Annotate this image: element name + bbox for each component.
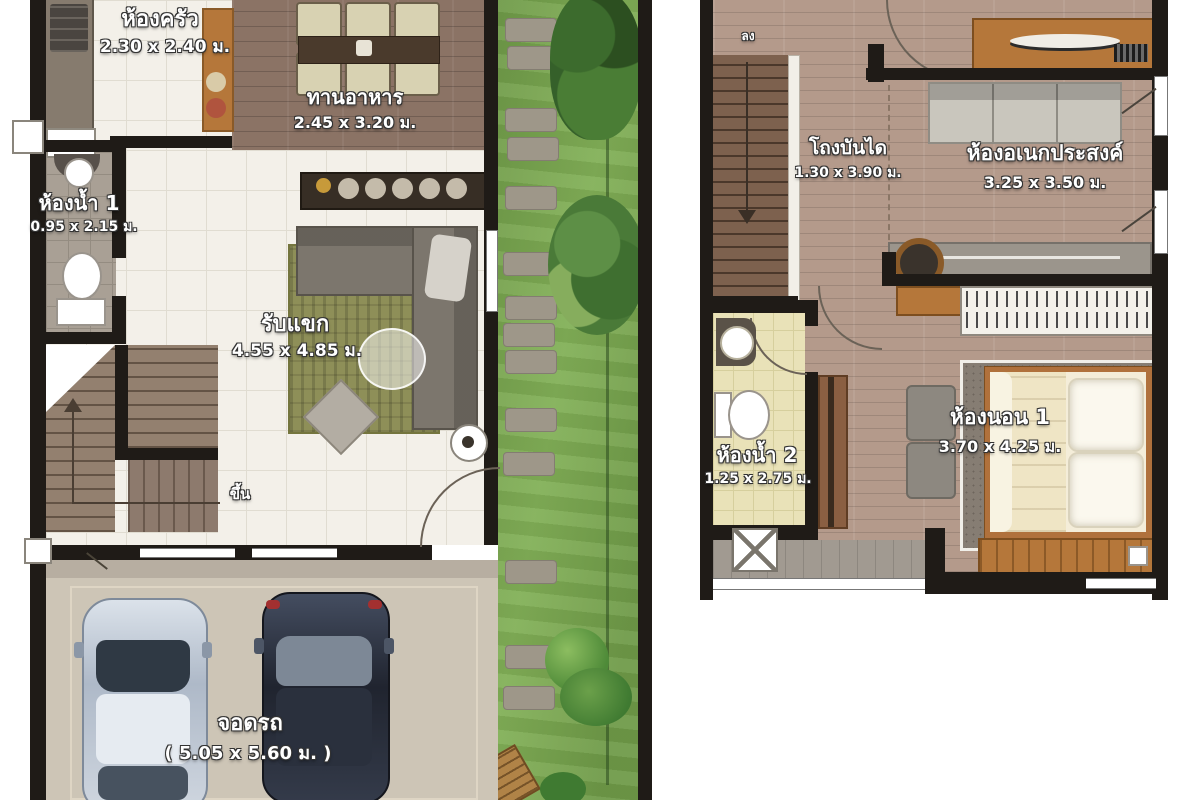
bath2-label: ห้องน้ำ 2 [702,444,812,466]
shrub-cluster-top [550,0,642,140]
desk-2f-highlight [920,256,1120,259]
stepping-stone [505,408,557,432]
bed-pillow [1068,452,1144,528]
stepping-stone [503,452,555,476]
console-decor-gold [316,178,331,193]
console-bowl [365,178,386,199]
dining-label: ทานอาหาร [280,86,430,108]
balcony-balustrade [713,578,925,590]
kitchen-dims: 2.30 x 2.40 ม. [70,38,260,57]
stairs-up-leader-line [72,502,220,504]
bedroom-bottom-window [1086,578,1156,589]
small-cabinet-2f [896,286,964,316]
stepping-stone [505,296,557,320]
stepping-stone [505,186,557,210]
car-light-mirror [202,642,212,658]
stepping-stone [503,686,555,710]
car-light-rear-window [98,766,188,800]
parking-dims: ( 5.05 x 5.60 ม. ) [158,744,338,764]
tv-2f [1010,34,1120,48]
dining-dims: 2.45 x 3.20 ม. [275,114,435,132]
living-window [486,230,498,312]
ac-unit [732,528,778,572]
door-mat-center [462,436,474,448]
bath2-wall-top [702,300,818,313]
stairhall-dims: 1.30 x 3.90 ม. [793,166,903,181]
multipurpose-top-wall [866,68,1156,80]
multipurpose-label: ห้องอเนกประสงค์ [945,142,1145,165]
stepping-stone [505,108,557,132]
multipurpose-dims: 3.25 x 3.50 ม. [960,174,1130,192]
palm-tree [548,195,646,335]
stairs-2f [713,55,788,300]
bedroom-tv-cabinet [818,375,848,529]
parking-label: จอดรถ [195,712,305,736]
bath2-basin [720,326,754,360]
car-dark-rear-window [276,636,372,686]
bath1-label: ห้องน้ำ 1 [14,192,144,214]
bedroom1-label: ห้องนอน 1 [935,406,1065,429]
plan2-right-window [1154,76,1168,136]
stairs-down-label: ลง [730,30,766,43]
stepping-stone [507,137,559,161]
speaker-2f [1114,44,1148,62]
wardrobe-hangers-row [966,291,1148,307]
entry-hall-floor [46,532,218,545]
porch-strip [46,560,498,578]
front-window [140,548,235,558]
bath1-basin [64,158,94,188]
bush-mid-2 [560,668,632,726]
stepping-stone [503,323,555,347]
sofa-2f [928,82,1122,144]
bush-bottom [540,772,586,800]
kitchen-living-wall [110,136,232,148]
car-dark-taillight [266,600,280,609]
bedroom-top-wall-stub [882,252,896,286]
console-bowl [446,178,467,199]
living-dims: 4.55 x 4.85 ม. [222,342,372,361]
console-bowl [338,178,359,199]
kitchen-window [12,120,44,154]
stairs-up-arrow-stem [72,412,74,504]
car-dark-mirror [384,638,394,654]
kitchen-label: ห้องครัว [75,8,245,32]
stairs-1f-right-flight [128,345,218,448]
front-window [252,548,337,558]
stairs-up-label: ขึ้น [220,486,260,503]
bedroom1-dims: 3.70 x 4.25 ม. [932,438,1068,456]
bed-pillow [1068,378,1144,452]
car-light-mirror [74,642,84,658]
bath2-toilet-bowl [728,390,770,440]
stairhall-label: โถงบันได [793,138,903,159]
cabinet-bowl-red [206,98,226,118]
table-plate [356,40,372,56]
cabinet-bowl [206,72,226,92]
plan2-right-window [1154,190,1168,254]
stairs-down-arrow-stem [746,62,748,212]
front-corner-window [24,538,52,564]
stair-divider-wall [115,345,128,448]
car-light-windshield [96,640,190,692]
deck-spotlight [1128,546,1148,566]
understair-floor [128,460,218,532]
garden-right-wall [638,0,652,800]
bath1-toilet-bowl [62,252,102,300]
stepping-stone [505,350,557,374]
stairs-down-arrowhead [738,210,756,224]
bath1-toilet-base [56,298,106,326]
stepping-stone [505,18,557,42]
plan2-left-wall [700,0,713,600]
console-bowl [419,178,440,199]
console-bowl [392,178,413,199]
floor-plan-image: ห้องครัว 2.30 x 2.40 ม. ทานอาหาร 2.45 x … [0,0,1200,800]
living-label: รับแขก [230,313,360,337]
bath2-dims: 1.25 x 2.75 ม. [700,472,816,487]
stairs-up-arrowhead [64,398,82,412]
car-dark-mirror [254,638,264,654]
wardrobe-hangers-row [966,312,1148,328]
stepping-stone [505,560,557,584]
car-dark-taillight [368,600,382,609]
understair-wall [115,448,218,460]
bath1-dims: 0.95 x 2.15 ม. [14,220,154,235]
bedroom-top-wall [882,274,1156,286]
